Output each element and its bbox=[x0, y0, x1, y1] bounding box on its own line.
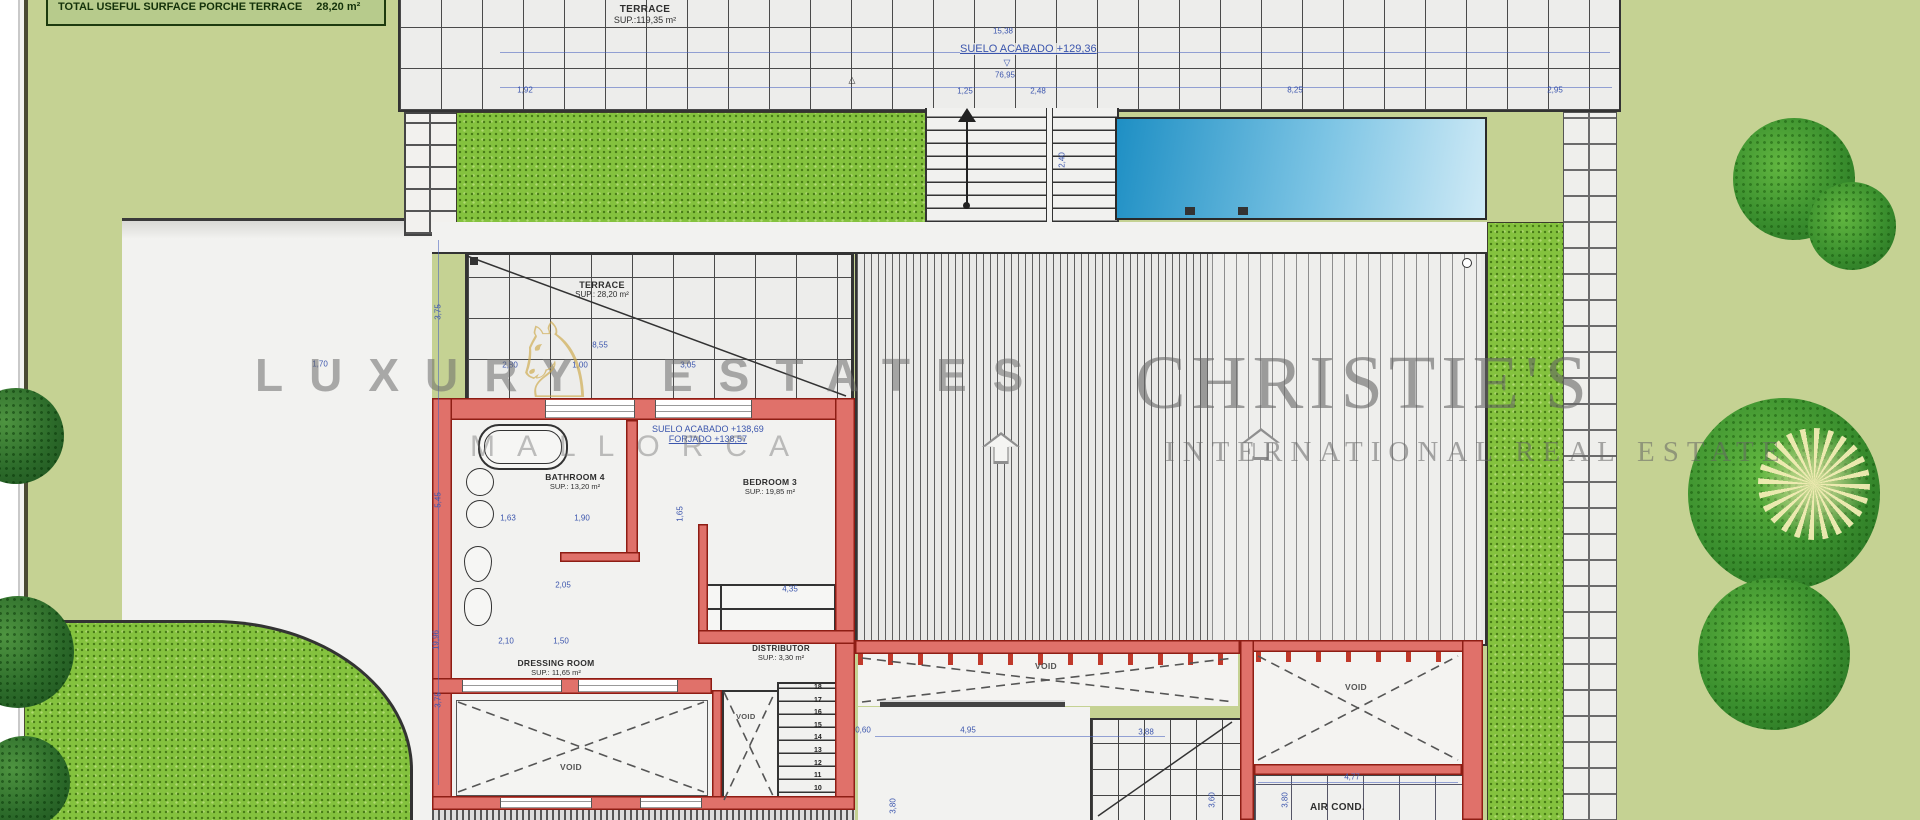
pool-step-marker bbox=[1238, 207, 1248, 215]
wall-bath-bedroom bbox=[626, 420, 638, 560]
stair-step-number: 11 bbox=[814, 772, 821, 779]
sink bbox=[466, 500, 494, 528]
stairs-rail bbox=[1046, 108, 1053, 222]
level-marker-triangle: ▽ bbox=[1004, 58, 1011, 69]
dimension-label: 1,50 bbox=[553, 637, 569, 646]
dimension-label: 8,55 bbox=[592, 341, 608, 350]
dimension-label: 1,00 bbox=[572, 361, 588, 370]
stairwell-void-label: VOID bbox=[736, 712, 756, 721]
stairwell-void bbox=[722, 690, 781, 806]
window-opening bbox=[655, 400, 752, 418]
terrace-top bbox=[398, 0, 1621, 112]
dimension-label: 2,80 bbox=[502, 361, 518, 370]
grass-right-strip bbox=[1487, 222, 1565, 820]
grass-upper-strip bbox=[456, 112, 926, 226]
dim-line-top-2 bbox=[500, 87, 1612, 88]
right-void-posts bbox=[1256, 652, 1460, 662]
void-dressing-label: VOID bbox=[560, 762, 582, 772]
air-cond-label: AIR COND. bbox=[1310, 802, 1365, 813]
window-opening bbox=[500, 798, 592, 808]
dressing-label: DRESSING ROOM SUP.: 11,65 m² bbox=[517, 658, 594, 677]
distributor-label: DISTRIBUTOR SUP.: 3,30 m² bbox=[752, 644, 810, 662]
window-opening bbox=[640, 798, 702, 808]
dimension-label: 1,90 bbox=[574, 514, 590, 523]
bed-pillow-line bbox=[720, 586, 722, 636]
dimension-label: 2,40 bbox=[1058, 152, 1067, 168]
dimension-label: 8,25 bbox=[1287, 86, 1303, 95]
bed-split-line bbox=[704, 608, 834, 610]
dimension-label: 3,75 bbox=[434, 304, 443, 320]
dimension-label: 2,95 bbox=[1547, 86, 1563, 95]
stair-step-number: 15 bbox=[814, 722, 822, 729]
right-void-left-wall bbox=[1240, 640, 1254, 820]
stairs-arrow-dot bbox=[963, 202, 970, 209]
dimension-label: 76,95 bbox=[995, 71, 1015, 80]
level-interior-line2: FORJADO +138,57 bbox=[669, 434, 747, 444]
dimension-label: 3,88 bbox=[1138, 728, 1154, 737]
level-annotation-top: SUELO ACABADO +129,36 bbox=[960, 43, 1097, 55]
wall-stairwell-left bbox=[712, 690, 722, 806]
level-interior-line1: SUELO ACABADO +138,69 bbox=[652, 424, 764, 434]
dimension-label: 0,60 bbox=[855, 726, 871, 735]
stairs-arrow-head bbox=[958, 108, 976, 122]
sink bbox=[466, 468, 494, 496]
terrace-top-area: SUP.:119,35 m² bbox=[614, 15, 676, 25]
floor-plan-canvas: TOTAL USEFUL SURFACE PORCHE TERRACE 28,2… bbox=[0, 0, 1920, 820]
wall-right bbox=[835, 398, 855, 820]
bedroom-label: BEDROOM 3 SUP.: 19,85 m² bbox=[743, 477, 797, 496]
tree bbox=[1808, 182, 1896, 270]
right-void-right-wall bbox=[1462, 640, 1483, 820]
dimension-label: 1,92 bbox=[517, 86, 533, 95]
level-annotation-interior: SUELO ACABADO +138,69 FORJADO +138,57 bbox=[652, 424, 764, 444]
window-opening bbox=[578, 680, 678, 692]
dimension-label: 2,05 bbox=[555, 581, 571, 590]
stair-step-number: 18 bbox=[814, 684, 822, 691]
legend-row: TOTAL USEFUL SURFACE PORCHE TERRACE 28,2… bbox=[48, 0, 384, 15]
bathroom-area: SUP.: 13,20 m² bbox=[545, 482, 605, 491]
legend-value: 28,20 m² bbox=[316, 1, 360, 13]
dimension-label: 3,75 bbox=[434, 692, 443, 708]
bathtub bbox=[478, 424, 568, 470]
terrace-small-name: TERRACE bbox=[575, 280, 629, 290]
terrace-corner-marker bbox=[470, 257, 478, 265]
stair-step-number: 10 bbox=[814, 785, 822, 792]
dimension-label: 4,95 bbox=[960, 726, 976, 735]
void-strip-top-wall bbox=[855, 640, 1240, 654]
toilet bbox=[464, 588, 492, 626]
walkway-band bbox=[432, 222, 1617, 254]
grid-court bbox=[1090, 718, 1242, 820]
terrace-small-label: TERRACE SUP.: 28,20 m² bbox=[575, 280, 629, 299]
stair-step-number: 14 bbox=[814, 734, 822, 741]
exterior-stairs bbox=[925, 108, 1119, 222]
right-void-top-wall bbox=[1240, 640, 1483, 652]
terrace-top-name: TERRACE bbox=[614, 4, 676, 15]
tree bbox=[1698, 578, 1850, 730]
dimension-label: 19,96 bbox=[432, 630, 441, 650]
wall-top bbox=[432, 398, 855, 420]
wall-mid-right bbox=[698, 630, 855, 644]
stair-step-number: 12 bbox=[814, 760, 822, 767]
stairhead-marker-triangle: △ bbox=[849, 75, 856, 86]
pool-step-marker bbox=[1185, 207, 1195, 215]
window-opening bbox=[462, 680, 562, 692]
stone-pillar-left bbox=[404, 112, 458, 236]
bathroom-label: BATHROOM 4 SUP.: 13,20 m² bbox=[545, 472, 605, 491]
wall-bedroom-left bbox=[698, 524, 708, 634]
dim-line-aircond bbox=[1258, 782, 1458, 783]
dimension-label: 2,48 bbox=[1030, 87, 1046, 96]
stair-step-numbers: 181716151413121110 bbox=[812, 682, 834, 804]
stair-step-number: 13 bbox=[814, 747, 822, 754]
dimension-label: 4,35 bbox=[782, 585, 798, 594]
stair-step-number: 17 bbox=[814, 697, 822, 704]
wall-bath-stub bbox=[560, 552, 640, 562]
void-strip-label: VOID bbox=[1035, 661, 1057, 671]
wall-left bbox=[432, 398, 452, 820]
distributor-area: SUP.: 3,30 m² bbox=[752, 653, 810, 662]
dimension-label: 1,65 bbox=[676, 506, 685, 522]
bedroom-area: SUP.: 19,85 m² bbox=[743, 487, 797, 496]
dimension-label: 3,80 bbox=[889, 798, 898, 814]
dressing-area: SUP.: 11,65 m² bbox=[517, 668, 594, 677]
dimension-label: 3,05 bbox=[680, 361, 696, 370]
deck-circle-marker bbox=[1462, 258, 1472, 268]
dimension-label: 3,80 bbox=[1281, 792, 1290, 808]
dimension-label: 2,10 bbox=[498, 637, 514, 646]
dimension-label: 5,45 bbox=[434, 492, 443, 508]
legend-label: TOTAL USEFUL SURFACE PORCHE TERRACE bbox=[58, 1, 302, 13]
terrace-small-area: SUP.: 28,20 m² bbox=[575, 290, 629, 299]
dim-line-room bbox=[875, 736, 1165, 737]
dimension-label: 3,60 bbox=[1208, 792, 1217, 808]
void-dressing bbox=[456, 700, 708, 796]
bathroom-name: BATHROOM 4 bbox=[545, 472, 605, 482]
dimension-label: 1,63 bbox=[500, 514, 516, 523]
window-opening bbox=[545, 400, 635, 418]
terrace-small bbox=[465, 252, 854, 404]
stair-step-number: 16 bbox=[814, 709, 822, 716]
beam bbox=[880, 700, 1065, 707]
stairs-direction-line bbox=[966, 122, 968, 204]
bedroom-name: BEDROOM 3 bbox=[743, 477, 797, 487]
dimension-label: 15,38 bbox=[993, 27, 1013, 36]
void-right-label: VOID bbox=[1345, 682, 1367, 692]
dressing-name: DRESSING ROOM bbox=[517, 658, 594, 668]
void-right bbox=[1254, 652, 1462, 764]
terrace-top-label: TERRACE SUP.:119,35 m² bbox=[614, 4, 676, 25]
dimension-label: 1,25 bbox=[957, 87, 973, 96]
dimension-label: 1,70 bbox=[312, 360, 328, 369]
brick-path-right bbox=[1563, 112, 1617, 820]
swimming-pool bbox=[1115, 117, 1487, 220]
legend-box: TOTAL USEFUL SURFACE PORCHE TERRACE 28,2… bbox=[46, 0, 386, 26]
dimension-label: 4,77 bbox=[1344, 773, 1360, 782]
level-top-text: SUELO ACABADO +129,36 bbox=[960, 43, 1097, 55]
tree bbox=[0, 388, 64, 484]
driveway-shading bbox=[122, 221, 432, 239]
roof-deck-right bbox=[1212, 254, 1481, 640]
bathtub-inner bbox=[484, 430, 562, 464]
facade-stripe-band bbox=[432, 810, 855, 820]
distributor-name: DISTRIBUTOR bbox=[752, 644, 810, 653]
palm-burst bbox=[1758, 428, 1870, 540]
